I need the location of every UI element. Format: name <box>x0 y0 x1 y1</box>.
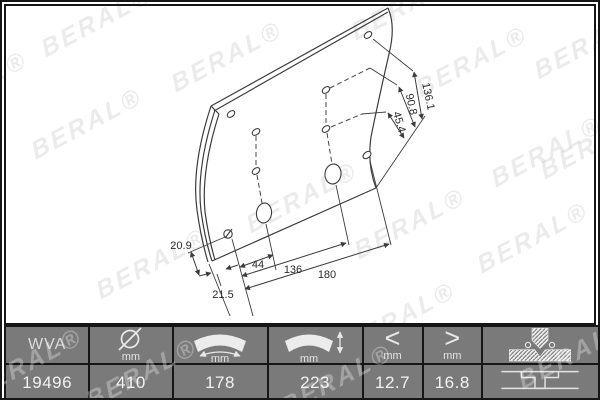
plate-outline <box>196 8 393 262</box>
header-wva: WVA <box>5 326 89 364</box>
extension-lines <box>188 39 425 316</box>
lining-thickness-icon: mm <box>283 327 347 363</box>
dim-label: 90.8 <box>403 93 419 116</box>
hole <box>363 30 373 40</box>
max-value: 16.8 <box>435 373 470 392</box>
dim-label: 20.9 <box>170 240 191 252</box>
hole <box>251 127 261 137</box>
wva-number: 19496 <box>22 373 72 392</box>
value-max: 16.8 <box>423 364 482 400</box>
dim-label: 21.5 <box>212 289 233 301</box>
header-min: < mm <box>363 326 423 364</box>
unit-label: mm <box>300 353 318 363</box>
rivet-tool-icon <box>505 327 575 363</box>
large-hole <box>324 163 343 185</box>
dim-label: 180 <box>318 269 336 281</box>
diameter-value: 410 <box>116 373 146 392</box>
unit-label: mm <box>443 351 461 362</box>
thickness-value: 223 <box>300 373 330 392</box>
hole <box>226 109 236 119</box>
value-rivet <box>482 364 599 400</box>
value-wva: 19496 <box>5 364 89 400</box>
value-diameter: 410 <box>89 364 172 400</box>
greater-than-symbol: > <box>444 328 460 350</box>
spec-table: WVA mm <box>4 325 600 400</box>
hole <box>251 166 261 176</box>
rivet-holes <box>224 30 373 238</box>
header-rivet <box>482 326 599 364</box>
dim-label: 136 <box>284 264 302 276</box>
unit-label: mm <box>122 352 140 363</box>
brake-lining-drawing: 20.9 21.5 44 136 180 136.1 90.8 45.4 <box>6 6 592 321</box>
wva-label: WVA <box>28 337 66 353</box>
header-diameter: mm <box>89 326 172 364</box>
width-value: 178 <box>205 373 235 392</box>
value-thickness: 223 <box>268 364 363 400</box>
catalog-page: BERAL®BERAL®BERAL®BERAL®BERAL®BERAL®BERA… <box>0 0 600 400</box>
lining-width-icon: mm <box>188 327 252 363</box>
unit-label: mm <box>383 351 401 362</box>
technical-drawing: 20.9 21.5 44 136 180 136.1 90.8 45.4 <box>4 4 596 325</box>
rivet-joint-icon <box>498 365 582 395</box>
large-hole <box>255 202 273 224</box>
unit-label: mm <box>211 353 229 363</box>
dim-label: 44 <box>252 259 264 271</box>
hole <box>362 150 373 160</box>
value-min: 12.7 <box>363 364 423 400</box>
hole <box>321 85 331 95</box>
header-max: > mm <box>423 326 482 364</box>
hole <box>321 124 331 134</box>
header-thickness: mm <box>268 326 363 364</box>
min-value: 12.7 <box>375 373 410 392</box>
less-than-symbol: < <box>385 328 401 350</box>
dim-label: 136.1 <box>419 82 436 111</box>
dim-label: 45.4 <box>390 110 407 134</box>
value-width: 178 <box>173 364 268 400</box>
hidden-lines <box>256 68 370 203</box>
header-width: mm <box>173 326 268 364</box>
diameter-icon <box>115 327 147 351</box>
